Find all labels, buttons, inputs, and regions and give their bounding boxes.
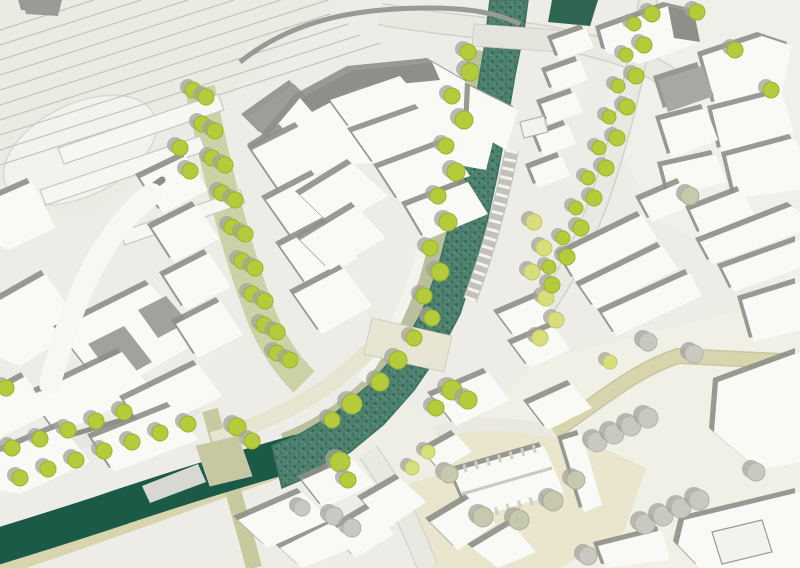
tree-green (636, 37, 652, 53)
tree-green (611, 79, 625, 93)
tree-pale (639, 333, 657, 351)
tree-green (12, 470, 28, 486)
tree-green (430, 188, 446, 204)
tree-green (416, 288, 432, 304)
tree-green (573, 220, 589, 236)
tree-green (460, 44, 476, 60)
tree-green (439, 213, 457, 231)
tree-green (237, 226, 253, 242)
tree-green (556, 231, 570, 245)
tree-green (627, 17, 641, 31)
tree-green (406, 330, 422, 346)
tree-green (124, 434, 140, 450)
tree-green (581, 171, 595, 185)
tree-sage (681, 187, 699, 205)
tree-green (96, 443, 112, 459)
tree-green (438, 138, 454, 154)
tree-green (244, 433, 260, 449)
tree-green (431, 263, 449, 281)
tree-green (330, 452, 350, 472)
tree-pale (685, 345, 703, 363)
tree-green (586, 190, 602, 206)
tree-green (247, 260, 263, 276)
tree-green (559, 249, 575, 265)
tree-yellow (548, 312, 564, 328)
tree-green (689, 4, 705, 20)
tree-yellow (536, 240, 552, 256)
tree-green (424, 310, 440, 326)
site-plan-map (0, 0, 800, 568)
tree-green (88, 413, 104, 429)
junction-east-road (436, 424, 558, 432)
masterplan-svg (0, 0, 800, 568)
tree-pale (747, 463, 765, 481)
tree-green (609, 130, 625, 146)
tree-yellow (532, 330, 548, 346)
tree-green (0, 380, 14, 396)
tree-green (40, 461, 56, 477)
tree-sage (440, 465, 458, 483)
tree-green (152, 425, 168, 441)
tree-pale (689, 490, 709, 510)
tree-green (198, 89, 214, 105)
tree-green (389, 351, 407, 369)
tree-yellow (603, 355, 617, 369)
tree-green (68, 452, 84, 468)
tree-green (180, 416, 196, 432)
tree-green (371, 373, 389, 391)
tree-green (257, 293, 273, 309)
tree-pale (294, 500, 310, 516)
tree-green (598, 160, 614, 176)
tree-sage (509, 510, 529, 530)
tree-green (172, 140, 188, 156)
tree-green (447, 163, 465, 181)
tree-green (340, 472, 356, 488)
tree-green (459, 391, 477, 409)
tree-sage (473, 507, 493, 527)
tree-green (60, 422, 76, 438)
tree-green (207, 123, 223, 139)
tree-green (282, 352, 298, 368)
tree-pale (579, 547, 597, 565)
tree-sage (567, 471, 585, 489)
tree-green (32, 431, 48, 447)
tree-green (217, 157, 233, 173)
tree-green (455, 111, 473, 129)
tree-green (644, 6, 660, 22)
tree-green (428, 400, 444, 416)
tree-green (116, 404, 132, 420)
tree-green (763, 82, 779, 98)
tree-sage (543, 491, 563, 511)
tree-green (628, 68, 644, 84)
building (22, 0, 62, 16)
tree-green (324, 412, 340, 428)
tree-green (542, 260, 556, 274)
tree-green (619, 48, 633, 62)
tree-yellow (421, 445, 435, 459)
tree-pale (343, 519, 361, 537)
tree-green (544, 277, 560, 293)
tree-green (4, 440, 20, 456)
tree-green (422, 240, 438, 256)
tree-green (227, 192, 243, 208)
tree-green (727, 42, 743, 58)
tree-green (592, 141, 606, 155)
tree-yellow (526, 214, 542, 230)
tree-green (461, 63, 479, 81)
tree-green (569, 201, 583, 215)
tree-green (602, 110, 616, 124)
tree-green (619, 99, 635, 115)
water-basin (548, 0, 598, 26)
tree-pale (638, 408, 658, 428)
tree-green (182, 163, 198, 179)
tree-green (342, 394, 362, 414)
tree-green (269, 324, 285, 340)
tree-yellow (405, 461, 419, 475)
tree-green (444, 88, 460, 104)
